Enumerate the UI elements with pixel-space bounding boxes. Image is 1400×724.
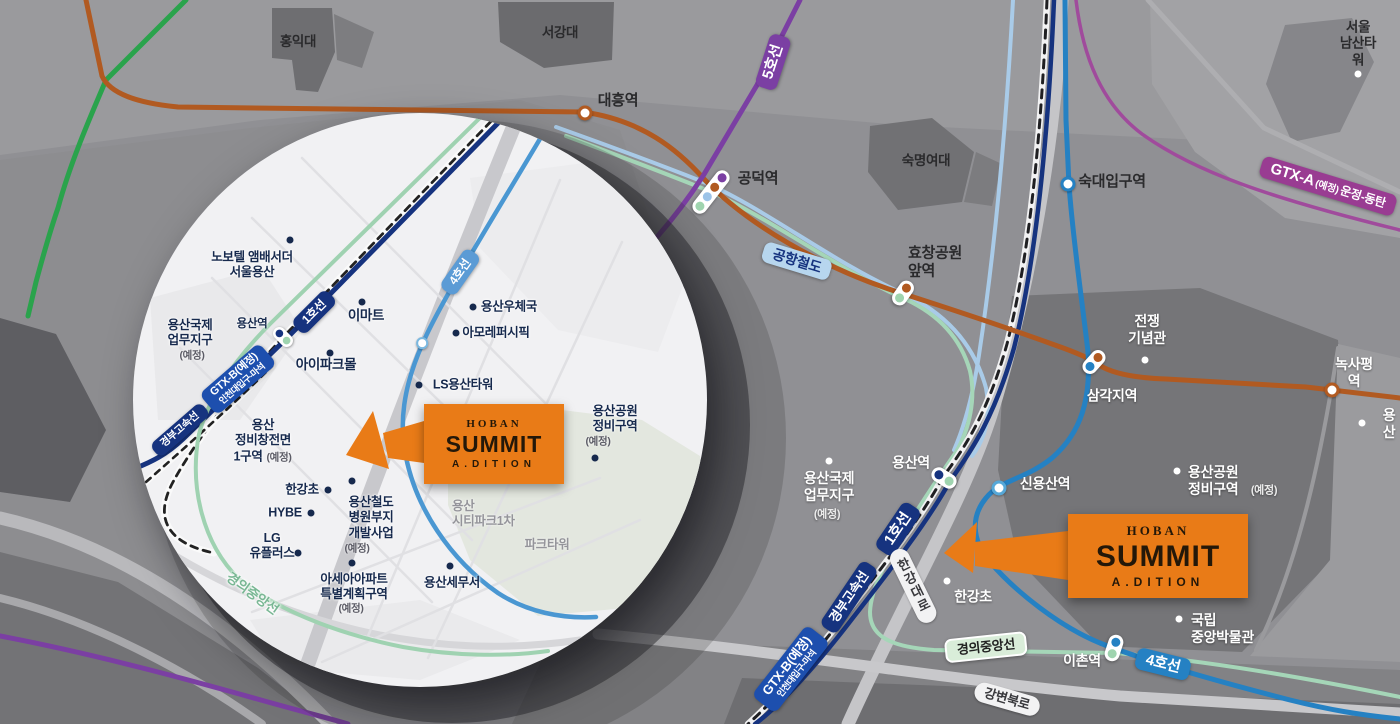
area-label: 용산우체국: [481, 299, 537, 314]
area-label: (예정): [344, 543, 369, 556]
area-label: 용산 정비창전면: [235, 418, 291, 449]
brand-product: SUMMIT: [446, 431, 543, 458]
location-map: HOBAN SUMMIT A.DITION 노보텔 앰배서더 서울용산용산국제 …: [0, 0, 1400, 724]
area-label: 용산역: [237, 317, 268, 331]
poi-dot: [349, 560, 356, 567]
map-region: [868, 118, 974, 210]
poi-dot: [325, 487, 332, 494]
poi-dot: [453, 330, 460, 337]
poi-dot: [359, 299, 366, 306]
area-label: 아세아아파트 특별계획구역: [320, 572, 387, 603]
area-label: 용산 시티파크1차: [452, 499, 515, 530]
poi-dot: [327, 350, 334, 357]
area-label: (예정): [266, 452, 291, 465]
poi-dot: [349, 478, 356, 485]
poi-dot: [447, 563, 454, 570]
poi-dot: [287, 237, 294, 244]
area-label: 이마트: [348, 308, 384, 324]
brand-name: HOBAN: [466, 418, 521, 430]
area-label: 노보텔 앰배서더 서울용산: [211, 250, 293, 281]
area-label: (예정): [179, 350, 204, 363]
area-label: 아모레퍼시픽: [462, 325, 529, 340]
area-label: 용산철도 병원부지 개발사업: [349, 495, 394, 541]
magnifier-inset: HOBAN SUMMIT A.DITION 노보텔 앰배서더 서울용산용산국제 …: [133, 113, 707, 687]
area-label: 용산세무서: [424, 575, 480, 590]
area-label: LG 유플러스: [250, 531, 295, 562]
area-label: 용산국제 업무지구: [168, 318, 213, 349]
area-label: LS용산타워: [433, 377, 493, 392]
poi-dot: [470, 304, 477, 311]
inset-region: [470, 158, 692, 352]
poi-dot: [295, 550, 302, 557]
callout-arrow-beam-main: [975, 531, 1068, 580]
station-marker: [416, 337, 428, 349]
poi-dot: [592, 455, 599, 462]
hoban-summit-box-inset: HOBAN SUMMIT A.DITION: [424, 404, 564, 484]
area-label: 아이파크몰: [296, 357, 357, 373]
map-region: [1150, 0, 1400, 238]
area-label: 한강초: [285, 482, 319, 497]
area-label: (예정): [585, 436, 610, 449]
area-label: 파크타워: [525, 537, 570, 552]
area-label: (예정): [338, 603, 363, 616]
brand-sub: A.DITION: [452, 459, 536, 470]
poi-dot: [416, 382, 423, 389]
area-label: 1구역: [233, 449, 262, 464]
poi-dot: [308, 510, 315, 517]
area-label: 용산공원 정비구역: [593, 404, 638, 435]
area-label: HYBE: [268, 505, 302, 520]
